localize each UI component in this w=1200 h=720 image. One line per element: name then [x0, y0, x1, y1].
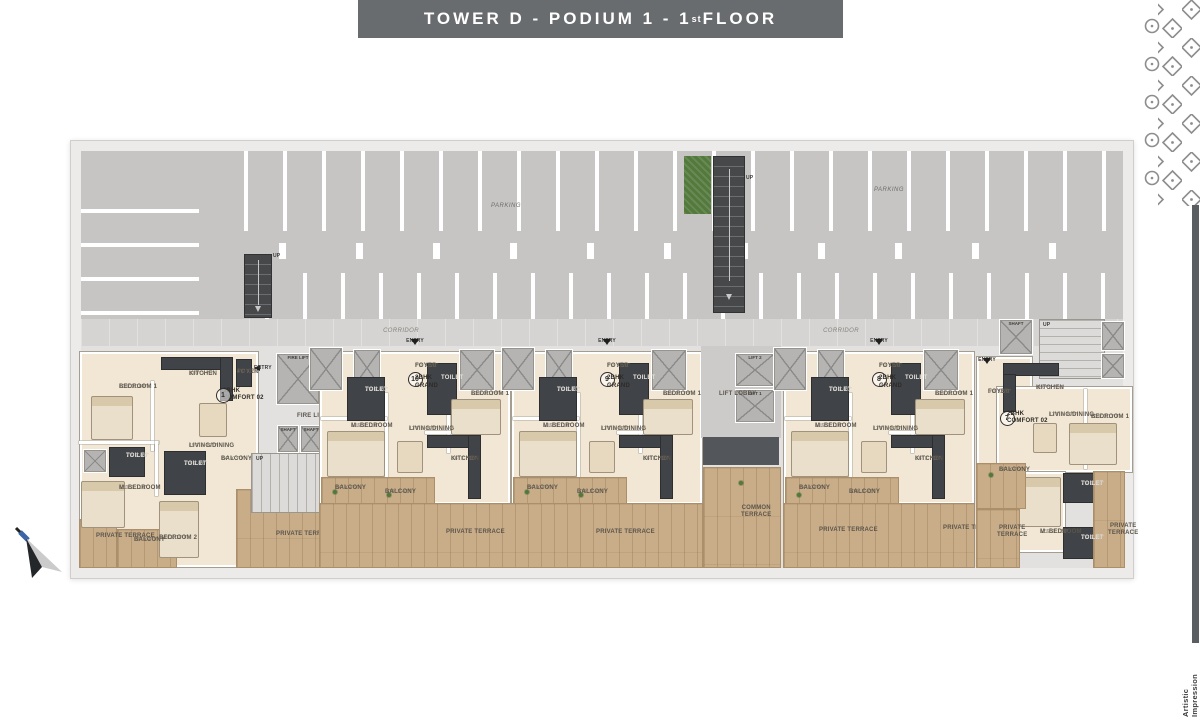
stair-arrow	[255, 306, 261, 312]
title-text: TOWER D - PODIUM 1 - 1	[424, 9, 692, 29]
title-suffix: FLOOR	[703, 9, 778, 29]
floor-plan: PARKING PARKING UP UP CORRIDOR CORRIDOR	[70, 140, 1134, 579]
accent-bar	[1192, 205, 1199, 643]
unit-8-kitchen-counter	[932, 435, 945, 499]
unit-9-toilet-block	[539, 377, 577, 421]
unit-1-bed2	[159, 501, 199, 558]
corridor-label-right: CORRIDOR	[823, 328, 859, 334]
stair-up-label: UP	[1043, 322, 1050, 328]
parking-slots-left	[81, 179, 199, 319]
plant-icon	[797, 493, 801, 497]
shaft-box	[773, 347, 807, 391]
shaft-box	[923, 349, 959, 391]
shaft-box	[309, 347, 343, 391]
stair-rail	[729, 169, 730, 281]
unit-8-bed	[915, 399, 965, 435]
plant-icon	[525, 490, 529, 494]
unit-10-kitchen-counter	[468, 435, 481, 499]
entry-arrow-icon	[983, 358, 991, 364]
unit-7-dining-table	[1033, 423, 1057, 453]
parking-label-right: PARKING	[874, 187, 904, 193]
plant-icon	[333, 490, 337, 494]
stair-up-label-left: UP	[273, 253, 280, 259]
shaft-box	[1101, 321, 1125, 351]
unit-1-dining-table	[199, 403, 227, 437]
entry-arrow-icon	[603, 339, 611, 345]
unit-1-number: 1	[216, 388, 231, 403]
unit-8-toilet-block	[811, 377, 849, 421]
lift-2-label: LIFT 2	[736, 355, 774, 360]
shaft-box: SHAFT	[999, 319, 1033, 355]
core-dark-band	[703, 437, 779, 465]
unit-7-bed	[1069, 423, 1117, 465]
landscape-strip	[684, 156, 711, 214]
plant-icon	[739, 481, 743, 485]
unit-9-bed	[643, 399, 693, 435]
shaft-box: SHAFT	[277, 425, 299, 453]
artistic-impression-watermark: Artistic Impression	[1181, 645, 1199, 717]
parking-slots-bottom-row	[231, 273, 1123, 319]
parking-slots-top-row	[209, 151, 1123, 231]
stair-up-label: UP	[256, 456, 263, 462]
page: TOWER D - PODIUM 1 - 1st FLOOR A	[0, 0, 1200, 720]
unit-8-private-terrace	[783, 503, 975, 568]
kolam-pattern-decoration	[1144, 0, 1200, 217]
unit-10-toilet-block	[347, 377, 385, 421]
core-staircase	[251, 453, 325, 513]
unit-8-dining-table	[861, 441, 887, 473]
wall	[79, 441, 159, 444]
unit-1-toilet-block	[109, 447, 145, 477]
unit-8-master-bed	[791, 431, 849, 477]
podium-stair-left	[244, 254, 272, 318]
unit-1-bed	[91, 396, 133, 440]
unit-9-kitchen-counter	[660, 435, 673, 499]
unit-9-dining-table	[589, 441, 615, 473]
shaft-box	[501, 347, 535, 391]
parking-deck: PARKING PARKING UP UP	[81, 151, 1123, 319]
stair-rail	[258, 260, 259, 305]
parking-label-left: PARKING	[491, 203, 521, 209]
plant-icon	[989, 473, 993, 477]
unit-1-toilet-block	[164, 451, 206, 495]
entry-arrow-icon	[875, 339, 883, 345]
entry-arrow-icon	[411, 339, 419, 345]
north-arrow-icon	[12, 526, 70, 589]
podium-stair-center	[713, 156, 745, 313]
unit-10-master-bed	[327, 431, 385, 477]
shaft-box	[1101, 353, 1125, 379]
plant-icon	[579, 493, 583, 497]
stair-arrow	[726, 294, 732, 300]
plant-icon	[387, 493, 391, 497]
shaft-box	[651, 349, 687, 391]
shaft-box	[459, 349, 495, 391]
stair-up-label-center: UP	[746, 175, 753, 181]
unit-10-bed	[451, 399, 501, 435]
title-bar: TOWER D - PODIUM 1 - 1st FLOOR	[358, 0, 843, 38]
lift-2-shaft: LIFT 2	[735, 353, 775, 387]
title-superscript: st	[692, 14, 702, 24]
corridor-label-left: CORRIDOR	[383, 328, 419, 334]
unit-10-dining-table	[397, 441, 423, 473]
shaft-box	[83, 449, 107, 473]
unit-9-master-bed	[519, 431, 577, 477]
parking-slot-stubs	[209, 243, 1123, 259]
